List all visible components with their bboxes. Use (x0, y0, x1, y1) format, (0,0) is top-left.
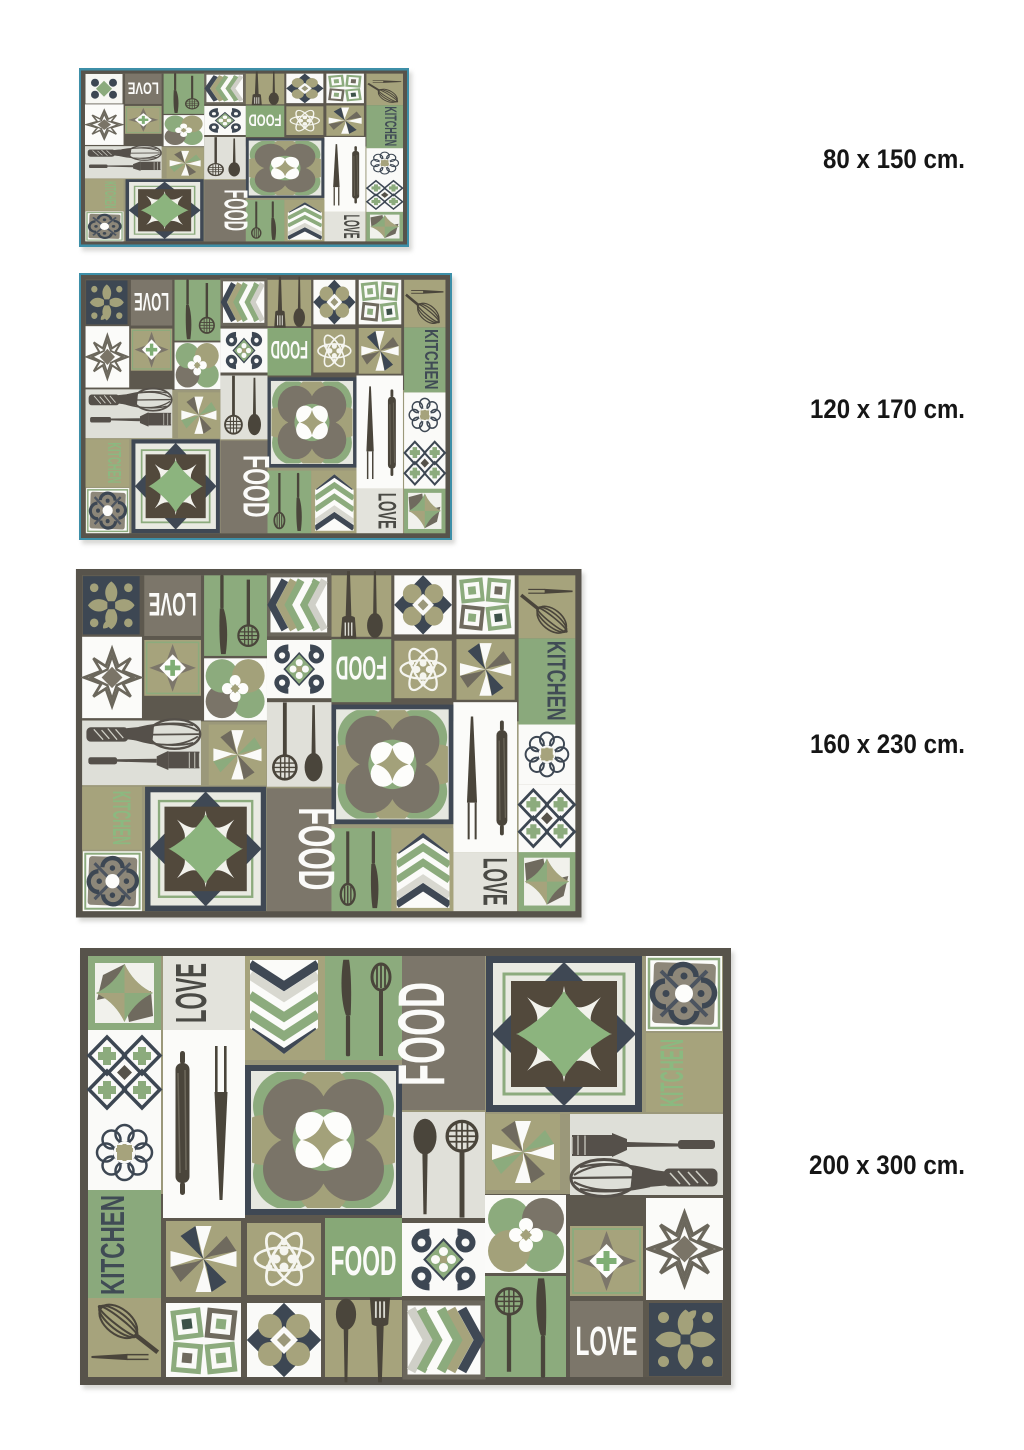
svg-text:80 x 150 cm.: 80 x 150 cm. (823, 144, 965, 174)
svg-text:200 x 300 cm.: 200 x 300 cm. (809, 1150, 965, 1180)
svg-text:160 x 230 cm.: 160 x 230 cm. (810, 729, 965, 759)
svg-text:120 x 170 cm.: 120 x 170 cm. (810, 394, 965, 424)
